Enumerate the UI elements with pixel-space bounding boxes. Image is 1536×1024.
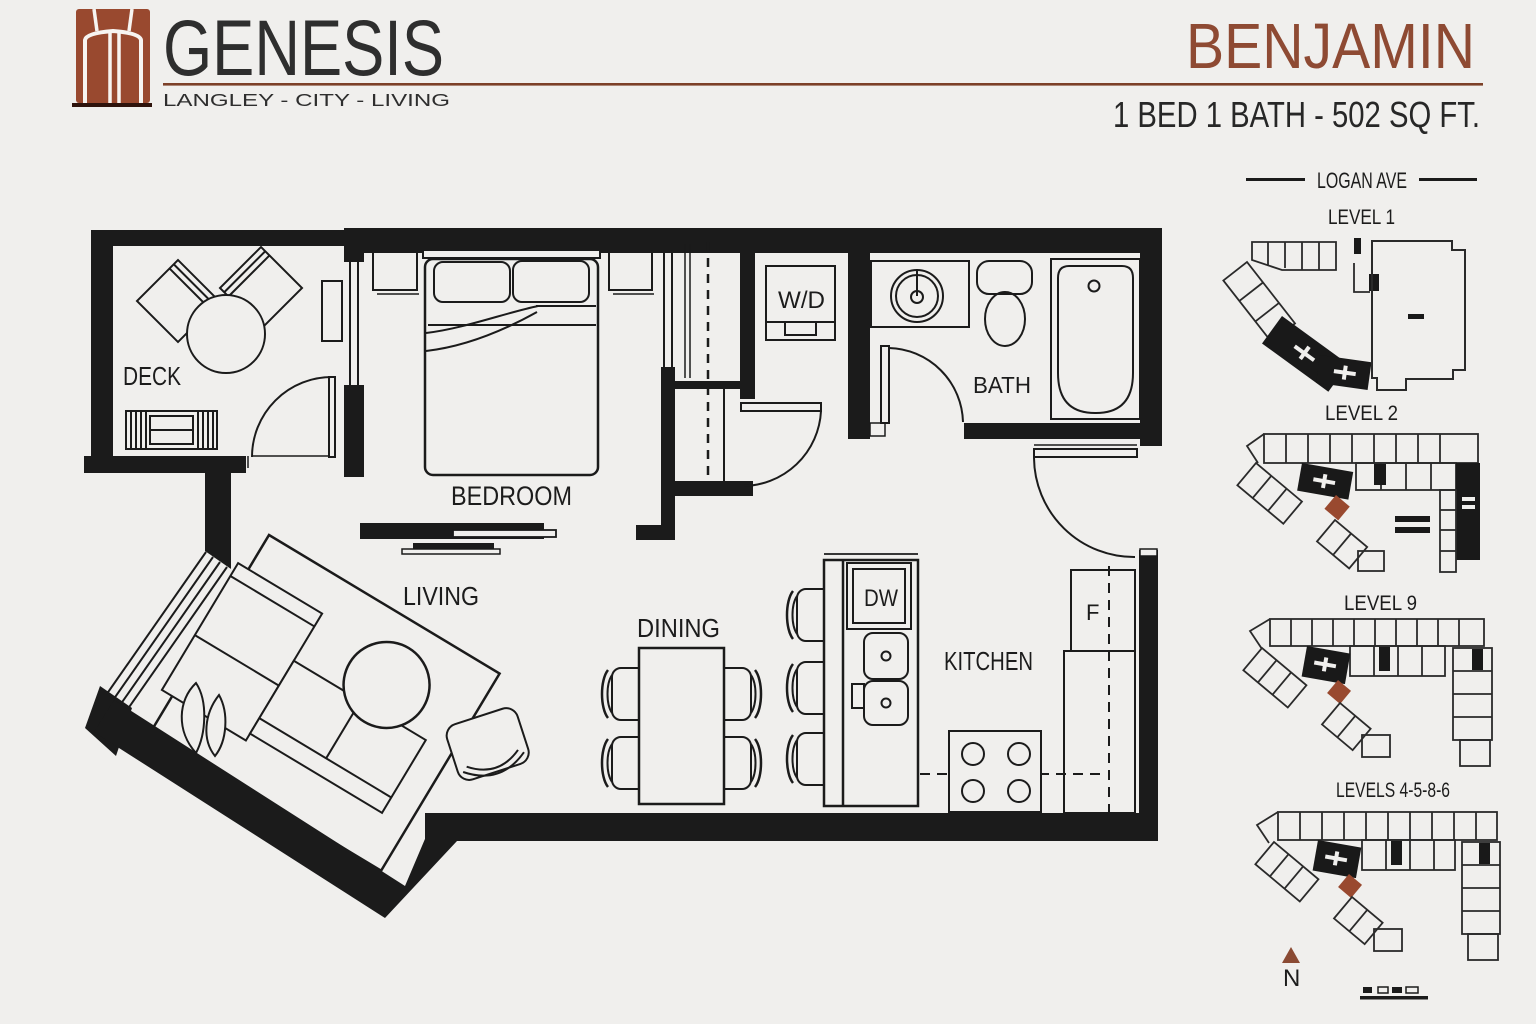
svg-text:BENJAMIN: BENJAMIN [1186,10,1475,82]
svg-text:KITCHEN: KITCHEN [944,646,1033,676]
svg-text:W/D: W/D [778,287,825,314]
svg-text:LIVING: LIVING [403,581,479,611]
svg-text:LANGLEY - CITY - LIVING: LANGLEY - CITY - LIVING [163,90,450,110]
svg-text:LEVEL 2: LEVEL 2 [1325,402,1398,425]
svg-text:N: N [1283,965,1300,992]
svg-text:DECK: DECK [123,361,182,391]
svg-text:DW: DW [864,585,898,612]
svg-text:1 BED 1 BATH - 502 SQ FT.: 1 BED 1 BATH - 502 SQ FT. [1113,94,1480,135]
svg-text:GENESIS: GENESIS [163,3,444,92]
svg-text:DINING: DINING [637,613,720,643]
svg-text:LOGAN AVE: LOGAN AVE [1317,168,1407,193]
svg-text:F: F [1086,600,1099,625]
svg-text:LEVEL 1: LEVEL 1 [1328,206,1395,229]
svg-text:LEVEL 9: LEVEL 9 [1344,592,1417,615]
svg-text:BEDROOM: BEDROOM [451,481,572,511]
svg-text:LEVELS 4-5-8-6: LEVELS 4-5-8-6 [1336,779,1450,802]
svg-text:BATH: BATH [973,372,1031,398]
